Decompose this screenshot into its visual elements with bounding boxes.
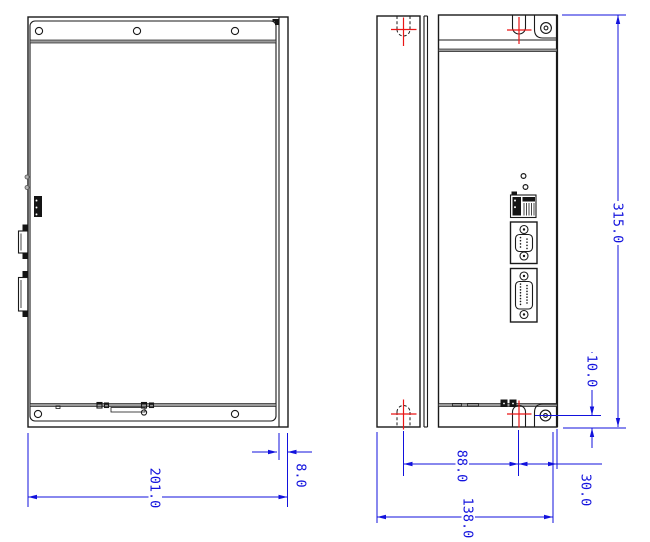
led-icon xyxy=(523,185,528,190)
side-mount-plate xyxy=(30,21,276,421)
led-icon xyxy=(521,174,526,179)
connector-post xyxy=(23,225,29,232)
side-view xyxy=(19,17,289,427)
dim-panel-lip-8: 8.0 xyxy=(252,450,312,488)
dim-overall-width-138: 138.0 xyxy=(377,496,553,540)
connector-post xyxy=(23,311,29,318)
dimensions: 201.0 8.0 88.0 30.0 xyxy=(28,15,626,540)
dim-hole-to-bottom-10: 10.0 xyxy=(584,352,600,448)
screw-hole xyxy=(231,27,238,34)
dim-text-315: 315.0 xyxy=(610,203,626,244)
dim-overall-height-315: 315.0 xyxy=(610,15,626,427)
connector-post xyxy=(23,271,29,278)
dim-overall-width-201: 201.0 xyxy=(28,466,288,510)
side-dip-switch xyxy=(34,196,42,217)
front-db-large-connector xyxy=(511,269,538,323)
body-outline xyxy=(439,15,558,427)
small-hole xyxy=(141,410,146,415)
dim-text-30: 30.0 xyxy=(578,474,594,507)
top-rail-band xyxy=(30,40,276,43)
led-icon xyxy=(25,175,29,179)
engineering-drawing: 201.0 8.0 88.0 30.0 xyxy=(0,0,650,542)
mount-rail xyxy=(424,16,428,427)
front-terminal-connector xyxy=(511,192,537,218)
connector-post xyxy=(23,253,29,260)
dim-text-201: 201.0 xyxy=(147,468,163,509)
bottom-tray xyxy=(111,408,145,413)
front-db9-connector xyxy=(511,222,538,264)
dim-text-138: 138.0 xyxy=(460,498,476,539)
dim-slot-to-edge-30: 30.0 xyxy=(519,462,603,506)
side-db9-connector xyxy=(19,225,29,260)
technical-drawing-canvas: 201.0 8.0 88.0 30.0 xyxy=(0,0,650,542)
led-icon xyxy=(25,186,29,190)
top-slot-centerline xyxy=(391,18,417,47)
bottom-slot-centerline xyxy=(391,400,417,430)
top-screw-holes xyxy=(35,27,238,34)
dim-text-10: 10.0 xyxy=(584,355,600,388)
screw-hole xyxy=(231,410,238,417)
dim-text-8: 8.0 xyxy=(293,463,309,487)
connector-shell xyxy=(19,231,29,253)
side-outer-frame xyxy=(28,17,288,427)
dim-text-88: 88.0 xyxy=(454,450,470,483)
screw-hole xyxy=(541,23,552,34)
screw-hole xyxy=(34,410,41,417)
connector-shell xyxy=(19,278,29,312)
side-db-large-connector xyxy=(19,271,29,317)
screw-hole xyxy=(133,27,140,34)
top-screw-tab xyxy=(535,15,558,38)
back-mount-plate xyxy=(377,16,420,427)
screw-hole xyxy=(35,27,42,34)
db9-insert xyxy=(516,235,533,252)
top-band xyxy=(439,49,558,52)
bottom-screw-holes xyxy=(34,410,238,417)
dim-hole-span-88: 88.0 xyxy=(404,447,519,485)
db-insert xyxy=(516,282,533,310)
front-led-indicators xyxy=(521,174,528,190)
front-view xyxy=(377,15,557,430)
